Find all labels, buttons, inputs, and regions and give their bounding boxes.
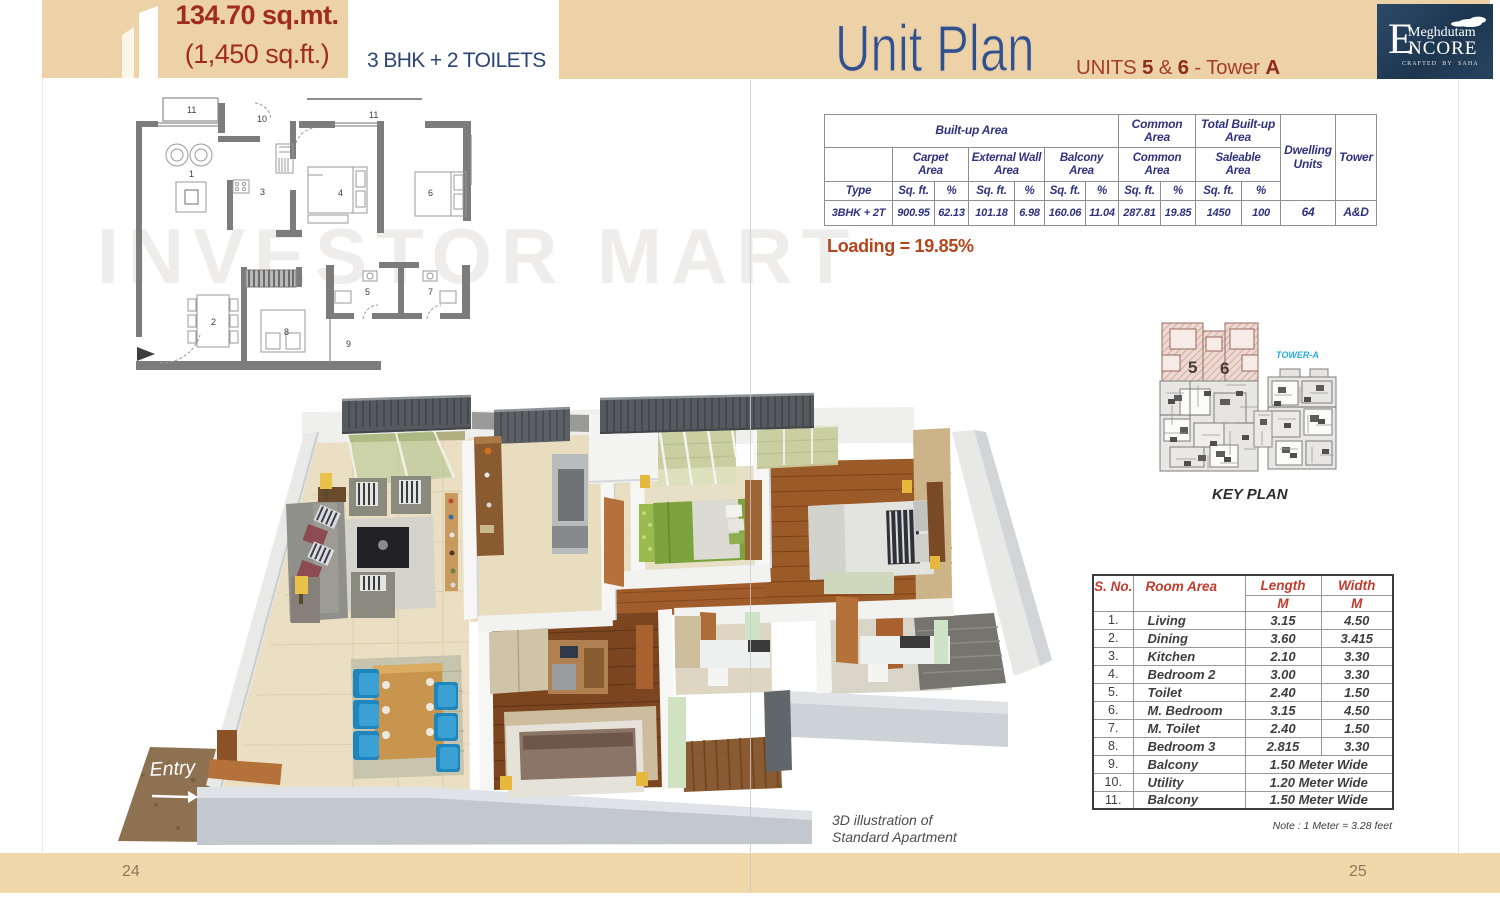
svg-text:7: 7 <box>428 287 433 297</box>
svg-text:KEY PLAN: KEY PLAN <box>1212 486 1289 503</box>
svg-text:11: 11 <box>187 105 196 115</box>
svg-text:6: 6 <box>1220 359 1229 378</box>
svg-text:9: 9 <box>346 339 351 349</box>
svg-text:8: 8 <box>284 327 289 337</box>
svg-text:Entry: Entry <box>149 757 197 781</box>
svg-text:6: 6 <box>428 188 433 198</box>
svg-text:TOWER-A: TOWER-A <box>1276 350 1319 360</box>
svg-text:2: 2 <box>211 317 216 327</box>
svg-text:5: 5 <box>1188 358 1197 377</box>
svg-text:3: 3 <box>260 187 265 197</box>
svg-text:4: 4 <box>338 188 343 198</box>
svg-text:5: 5 <box>365 287 370 297</box>
svg-text:1: 1 <box>189 169 194 179</box>
svg-text:10: 10 <box>257 114 267 124</box>
svg-text:11: 11 <box>369 110 378 120</box>
